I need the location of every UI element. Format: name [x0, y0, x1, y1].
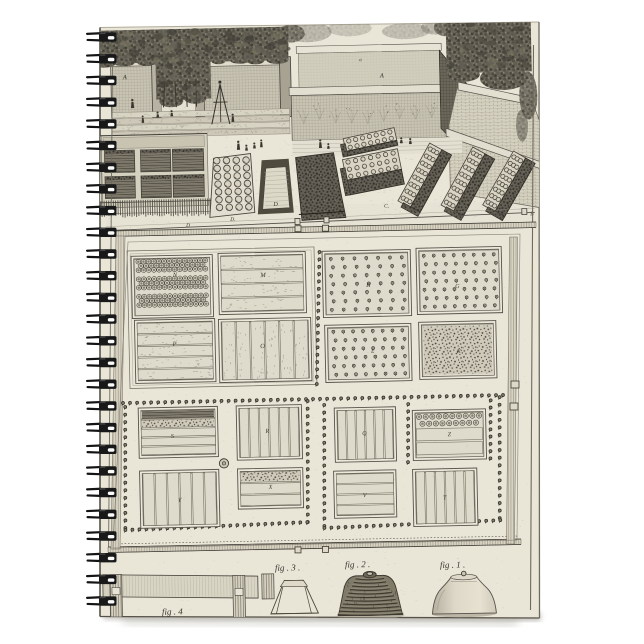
svg-text:M: M	[259, 272, 266, 279]
svg-text:X: X	[268, 485, 273, 491]
svg-text:D.: D.	[229, 217, 235, 223]
svg-text:fig . 1 .: fig . 1 .	[440, 559, 465, 569]
svg-text:fig . 3 .: fig . 3 .	[275, 562, 300, 572]
svg-text:N: N	[172, 272, 178, 279]
svg-text:L: L	[370, 349, 375, 355]
svg-text:D: D	[185, 223, 190, 229]
svg-text:D: D	[272, 202, 278, 208]
svg-text:H: H	[365, 283, 371, 289]
svg-text:fig . 2 .: fig . 2 .	[345, 559, 370, 569]
svg-text:G: G	[455, 284, 460, 290]
svg-text:A: A	[379, 73, 384, 80]
svg-text:fig . 4: fig . 4	[162, 606, 183, 616]
svg-text:P: P	[171, 341, 176, 348]
svg-text:O: O	[260, 343, 265, 350]
svg-text:S: S	[171, 434, 174, 440]
svg-text:Q: Q	[362, 431, 367, 437]
svg-text:R: R	[264, 429, 269, 435]
svg-text:C.: C.	[384, 204, 389, 210]
svg-text:A: A	[122, 74, 127, 81]
